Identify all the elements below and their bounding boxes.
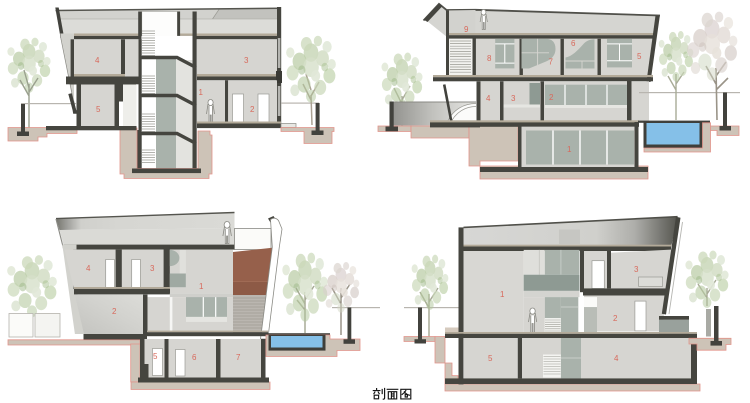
svg-text:6: 6 xyxy=(571,39,576,48)
svg-text:4: 4 xyxy=(614,354,619,363)
svg-text:3: 3 xyxy=(244,56,249,65)
svg-text:2: 2 xyxy=(112,307,117,316)
svg-text:1: 1 xyxy=(199,282,204,291)
svg-text:1: 1 xyxy=(567,145,572,154)
svg-text:2: 2 xyxy=(549,93,554,102)
svg-text:7: 7 xyxy=(236,353,241,362)
svg-text:4: 4 xyxy=(86,264,91,273)
svg-text:3: 3 xyxy=(150,264,155,273)
svg-text:2: 2 xyxy=(250,105,255,114)
svg-text:2: 2 xyxy=(613,314,618,323)
svg-text:7: 7 xyxy=(549,58,554,67)
svg-text:5: 5 xyxy=(96,105,101,114)
svg-text:3: 3 xyxy=(511,94,516,103)
svg-text:3: 3 xyxy=(634,265,639,274)
svg-text:4: 4 xyxy=(95,56,100,65)
svg-text:5: 5 xyxy=(637,52,642,61)
svg-text:4: 4 xyxy=(486,94,491,103)
svg-text:1: 1 xyxy=(199,88,204,97)
svg-text:5: 5 xyxy=(153,352,158,361)
svg-text:1: 1 xyxy=(500,290,505,299)
svg-text:9: 9 xyxy=(464,25,469,34)
svg-text:6: 6 xyxy=(192,353,197,362)
svg-text:8: 8 xyxy=(487,54,492,63)
svg-text:5: 5 xyxy=(488,354,493,363)
